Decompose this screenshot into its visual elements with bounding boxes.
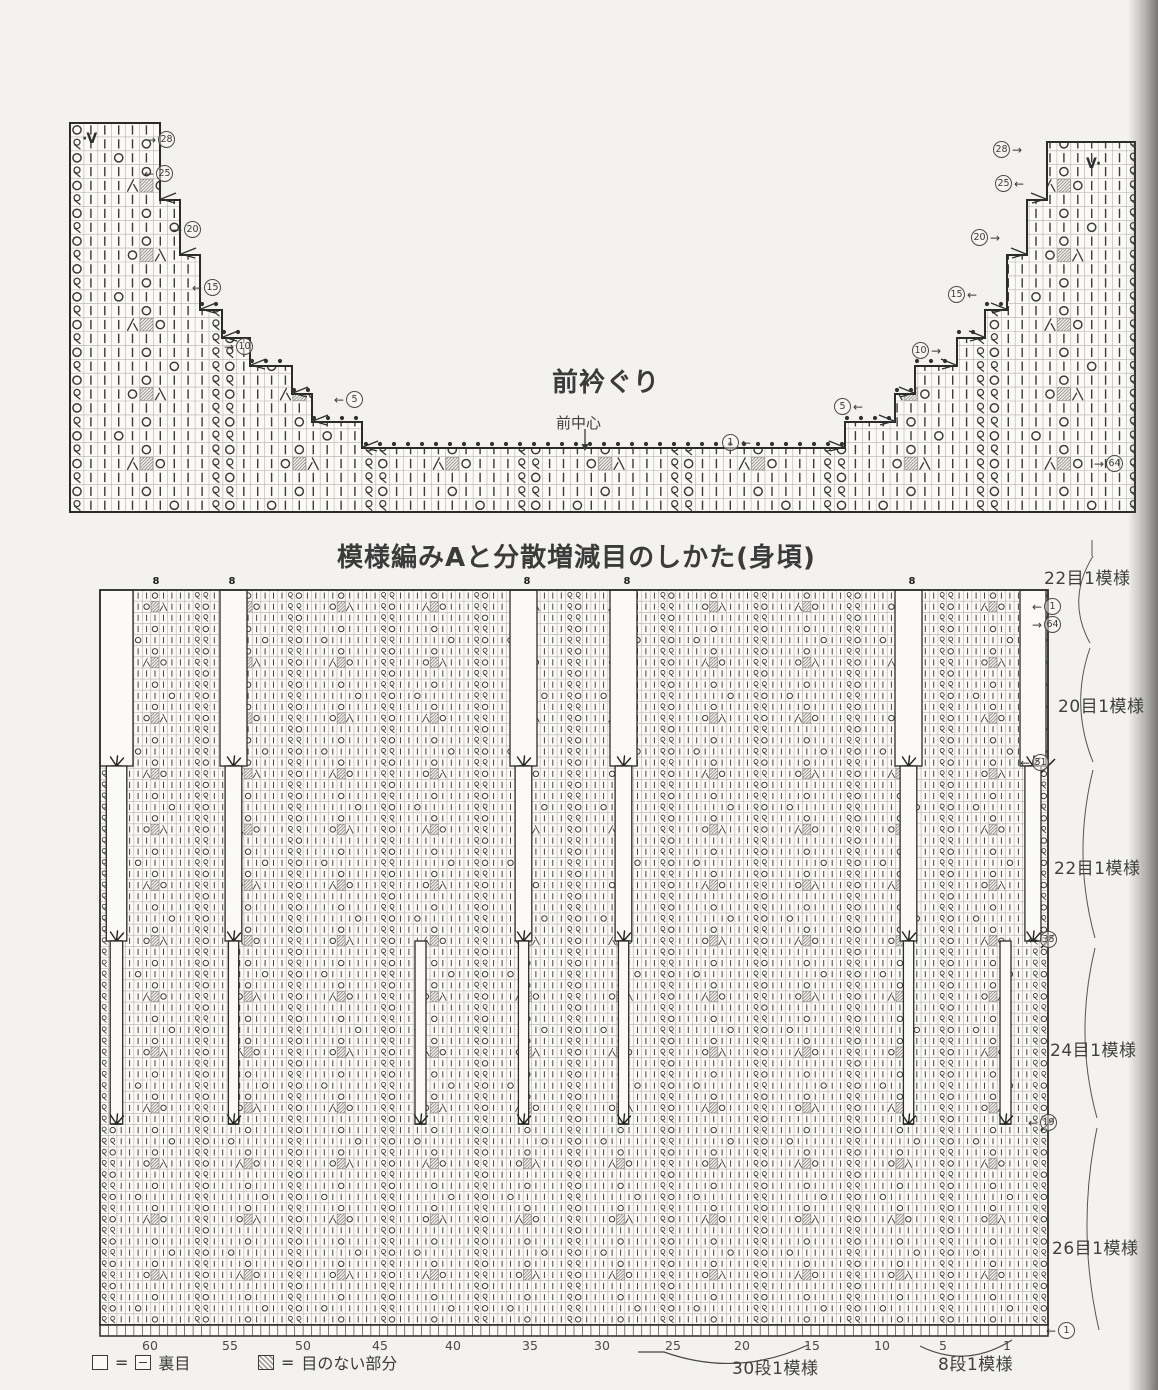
row-direction-arrow: → — [224, 340, 234, 354]
circled-row-number: 15 — [948, 286, 965, 303]
pattern-title: 模様編みAと分散増減目のしかた(身頃) — [337, 537, 816, 574]
row-direction-arrow: ← — [741, 436, 751, 450]
circled-row-number: 25 — [995, 175, 1012, 192]
stitch-number: 15 — [804, 1338, 820, 1353]
row-direction-arrow: ← — [1028, 1116, 1038, 1130]
row-direction-arrow: → — [1012, 143, 1022, 157]
row-direction-arrow: ← — [192, 281, 202, 295]
row-direction-arrow: ← — [1032, 600, 1042, 614]
row-marker-neckline_right: 20→ — [971, 229, 1000, 246]
stitch-number: 35 — [522, 1338, 538, 1353]
row-marker-neckline_left: →28 — [146, 131, 175, 148]
legend-purl: = 裏目 — [92, 1350, 190, 1374]
row-marker-main_right: →64 — [1032, 616, 1061, 633]
circled-row-number: 1 — [1058, 1322, 1075, 1339]
slot-top-mark: 8 — [909, 576, 916, 587]
circled-row-number: 5 — [346, 391, 363, 408]
circled-row-number: 64 — [1044, 616, 1061, 633]
circled-row-number: 10 — [912, 342, 929, 359]
stitch-number: 55 — [222, 1338, 238, 1353]
row-marker-neckline_right: 28→ — [993, 141, 1022, 158]
row-marker-neckline_right: 5← — [834, 398, 863, 415]
equals-sign: = — [115, 1353, 128, 1372]
row-marker-neckline_edge: →64 — [1094, 455, 1123, 472]
row-direction-arrow: ← — [967, 288, 977, 302]
legend-purl-label: 裏目 — [158, 1350, 190, 1374]
row-direction-arrow: → — [1094, 457, 1104, 471]
circled-row-number: 5 — [834, 398, 851, 415]
row-direction-arrow: → — [931, 344, 941, 358]
row-direction-arrow: ← — [1020, 756, 1030, 770]
row-marker-neckline_right: 25← — [995, 175, 1024, 192]
scanned-knitting-pattern-page: 前衿ぐり 前中心 ·V V· 模様編みAと分散増減目のしかた(身頃) →28←2… — [0, 0, 1158, 1390]
brace-label: 8段1模様 — [938, 1350, 1013, 1375]
equals-sign: = — [281, 1353, 294, 1372]
row-marker-neckline_right: 15← — [948, 286, 977, 303]
circled-row-number: 1 — [722, 434, 739, 451]
row-marker-main_right: ←19 — [1028, 1114, 1057, 1131]
row-marker-neckline_left: ←15 — [192, 279, 221, 296]
row-marker-main_right: ←51 — [1020, 754, 1049, 771]
row-direction-arrow: ← — [1014, 177, 1024, 191]
slot-top-mark: 8 — [624, 576, 631, 587]
slot-top-mark: 8 — [229, 576, 236, 587]
row-marker-main_right: ←35 — [1028, 931, 1057, 948]
row-direction-arrow: ← — [334, 393, 344, 407]
circled-row-number: 15 — [204, 279, 221, 296]
bracket-label: 20目1模様 — [1058, 692, 1144, 717]
stitch-number: 40 — [445, 1338, 461, 1353]
circled-row-number: 1 — [1044, 598, 1061, 615]
hatched-box-symbol — [258, 1355, 274, 1370]
row-marker-neckline_right: 10→ — [912, 342, 941, 359]
row-marker-neckline_left: →20 — [172, 221, 201, 238]
circled-row-number: 19 — [1040, 1114, 1057, 1131]
row-marker-neckline_left: →10 — [224, 338, 253, 355]
stitch-number: 30 — [594, 1338, 610, 1353]
bracket-label: 22目1模様 — [1044, 564, 1130, 589]
row-direction-arrow: ← — [1028, 933, 1038, 947]
circled-row-number: 10 — [236, 338, 253, 355]
row-direction-arrow: ← — [1046, 1324, 1056, 1338]
bracket-label: 22目1模様 — [1054, 854, 1140, 879]
empty-box-symbol — [92, 1355, 108, 1370]
knitting-charts-graphic — [0, 0, 1158, 1390]
stitch-number: 10 — [874, 1338, 890, 1353]
row-marker-main_right: ←1 — [1046, 1322, 1075, 1339]
row-direction-arrow: ← — [144, 167, 154, 181]
row-direction-arrow: → — [990, 231, 1000, 245]
row-marker-neckline_left: ←5 — [334, 391, 363, 408]
bracket-label: 26目1模様 — [1052, 1234, 1138, 1259]
bracket-label: 24目1模様 — [1050, 1036, 1136, 1061]
row-direction-arrow: → — [172, 223, 182, 237]
row-direction-arrow: ← — [853, 400, 863, 414]
circled-row-number: 20 — [184, 221, 201, 238]
brace-label: 30段1模様 — [732, 1354, 818, 1379]
circled-row-number: 64 — [1106, 455, 1123, 472]
circled-row-number: 35 — [1040, 931, 1057, 948]
row-marker-neckline_center: 1← — [722, 434, 751, 451]
slot-top-mark: 8 — [153, 576, 160, 587]
circled-row-number: 20 — [971, 229, 988, 246]
stitch-number: 20 — [734, 1338, 750, 1353]
row-marker-main_right: ←1 — [1032, 598, 1061, 615]
row-direction-arrow: → — [146, 133, 156, 147]
v-symbol-left: ·V — [82, 131, 96, 147]
center-front-label: 前中心 — [556, 412, 601, 433]
circled-row-number: 51 — [1032, 754, 1049, 771]
legend-no-stitch: = 目のない部分 — [258, 1350, 397, 1374]
circled-row-number: 28 — [158, 131, 175, 148]
neckline-title: 前衿ぐり — [552, 362, 660, 399]
v-symbol-right: V· — [1086, 156, 1100, 172]
legend-no-stitch-label: 目のない部分 — [301, 1350, 397, 1374]
row-direction-arrow: → — [1032, 618, 1042, 632]
purl-dash-box-symbol — [135, 1355, 151, 1370]
stitch-number: 25 — [665, 1338, 681, 1353]
circled-row-number: 25 — [156, 165, 173, 182]
slot-top-mark: 8 — [524, 576, 531, 587]
row-marker-neckline_left: ←25 — [144, 165, 173, 182]
circled-row-number: 28 — [993, 141, 1010, 158]
